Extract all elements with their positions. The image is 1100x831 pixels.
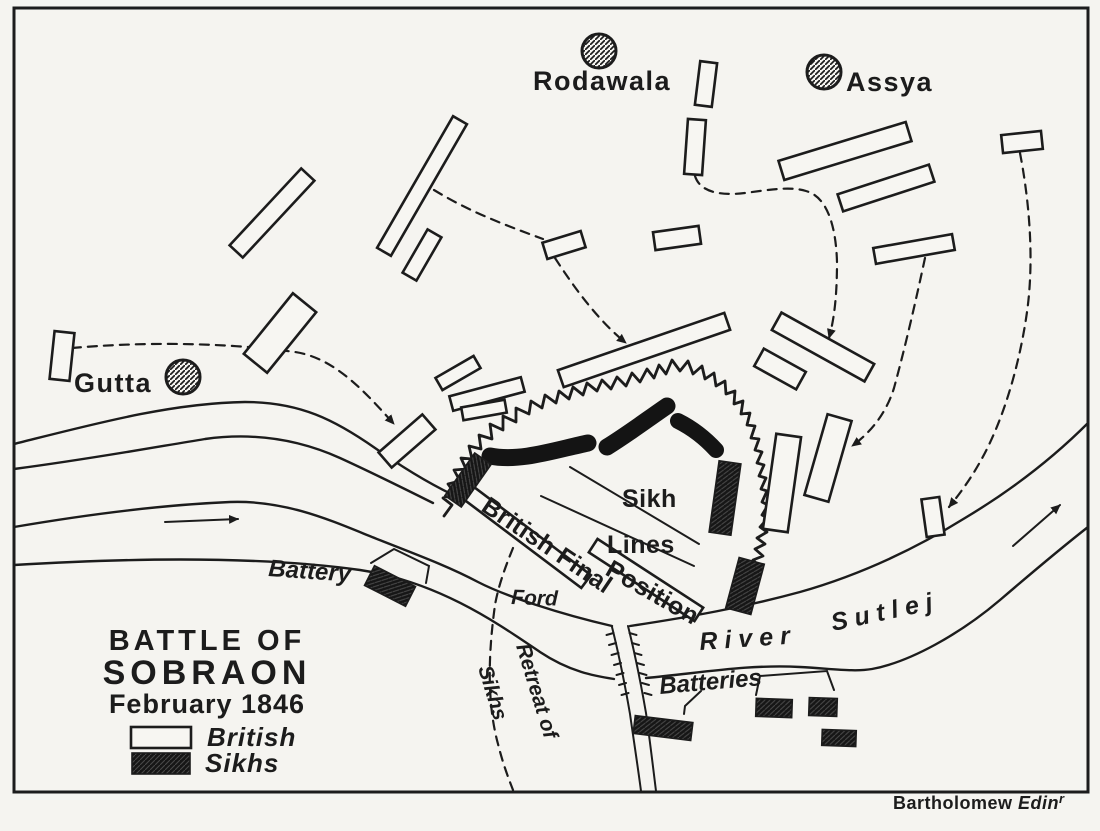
british-unit: [838, 165, 935, 212]
british-unit: [435, 356, 480, 390]
sikh-unit: [822, 729, 857, 746]
british-final-position-label-line2: Position: [601, 555, 704, 631]
british-unit: [763, 434, 801, 533]
retreat-label-line2: Sikhs: [473, 663, 511, 723]
map-canvas: RodawalaAssyaGutta Sikh Lines British Fi…: [0, 0, 1100, 831]
british-unit: [542, 231, 585, 259]
river-label-word2: Sutlej: [828, 587, 941, 637]
map-title-line3: February 1846: [109, 689, 305, 719]
river-north-bank-east: [630, 423, 1088, 626]
british-unit: [377, 116, 467, 256]
title-block: BATTLE OF SOBRAON February 1846: [103, 625, 312, 719]
movement-dashed-arrow: [852, 258, 925, 446]
british-unit: [50, 331, 75, 381]
village-marker-assya: [807, 55, 841, 89]
british-unit: [921, 497, 944, 537]
ford-label: Ford: [511, 586, 560, 611]
map-title-line2: SOBRAON: [103, 654, 312, 692]
batteries-bracket: [756, 671, 834, 695]
sikh-unit: [726, 558, 765, 615]
cartographer-signature: Bartholomew Edinr: [893, 791, 1065, 813]
flow-arrow-east: [1013, 505, 1060, 546]
sikh-unit: [809, 698, 838, 717]
movement-dashed-line: [434, 190, 543, 239]
sikh-lines-label-line1: Sikh: [622, 485, 677, 513]
sikh-unit: [633, 716, 693, 741]
british-unit: [1001, 131, 1043, 153]
british-unit: [653, 226, 701, 250]
british-unit: [244, 293, 316, 372]
legend: British Sikhs: [131, 722, 296, 778]
movement-dashed-arrow: [695, 176, 837, 338]
legend-sikhs-label: Sikhs: [205, 748, 279, 778]
movement-dashed-arrow: [555, 258, 626, 343]
village-label-assya: Assya: [846, 67, 933, 97]
battle-map: RodawalaAssyaGutta Sikh Lines British Fi…: [0, 0, 1100, 831]
legend-british-swatch: [131, 727, 191, 748]
village-label-rodawala: Rodawala: [533, 66, 671, 96]
flow-arrow-west: [165, 519, 238, 522]
legend-sikhs-swatch: [132, 753, 190, 774]
british-unit: [379, 414, 436, 467]
british-unit: [754, 349, 806, 390]
british-unit: [403, 229, 442, 280]
battery-label: Battery: [268, 555, 354, 588]
sikh-unit: [709, 461, 741, 535]
sikh-lines-label-line2: Lines: [607, 531, 675, 559]
movement-dashed-arrow: [949, 153, 1031, 507]
british-unit: [684, 119, 706, 175]
batteries-label: Batteries: [658, 664, 763, 700]
sikh-line-bands: [490, 406, 716, 458]
village-marker-rodawala: [582, 34, 616, 68]
sikh-unit: [365, 566, 416, 606]
british-unit: [804, 414, 851, 502]
sikh-unit: [756, 698, 793, 717]
village-label-gutta: Gutta: [74, 368, 152, 398]
bridge-of-boats: [607, 626, 657, 791]
river-label-word1: River: [698, 621, 797, 656]
british-unit: [695, 61, 717, 107]
british-unit: [873, 234, 955, 264]
map-title-line1: BATTLE OF: [109, 625, 306, 657]
bridge-hatch-ticks: [607, 633, 652, 695]
old-channel-south-bank: [14, 436, 433, 503]
british-unit: [230, 168, 315, 257]
british-unit: [778, 122, 911, 180]
village-marker-gutta: [166, 360, 200, 394]
retreat-label-line1: Retreat of: [511, 641, 562, 743]
